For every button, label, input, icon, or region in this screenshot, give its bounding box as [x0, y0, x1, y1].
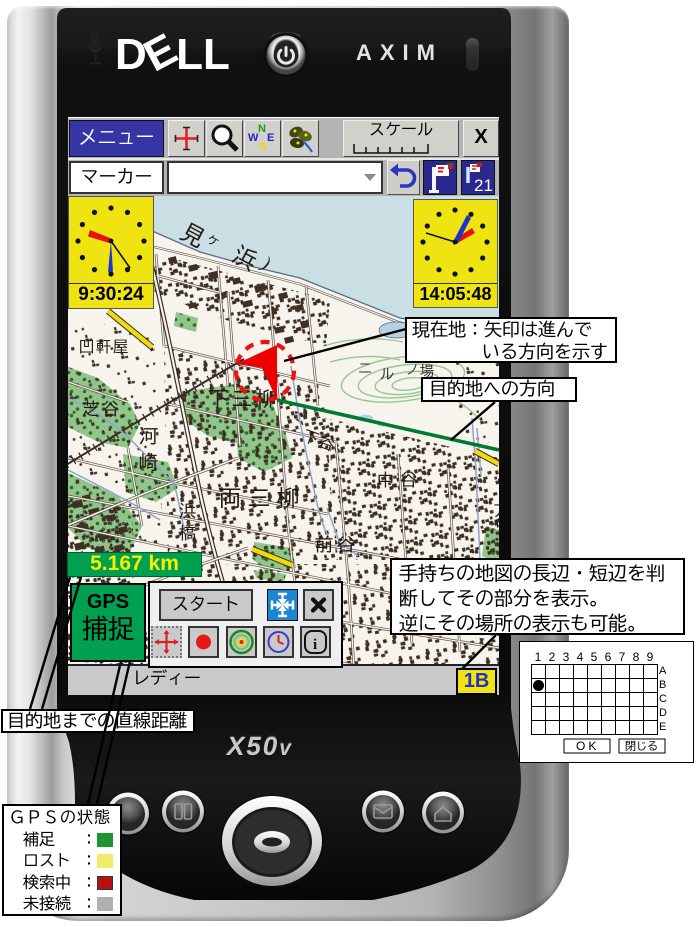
svg-text:1: 1 [535, 650, 542, 664]
svg-text:橋: 橋 [179, 524, 196, 542]
svg-text:浜: 浜 [179, 503, 196, 520]
svg-text:両三柳: 両三柳 [219, 487, 306, 509]
svg-text:8: 8 [633, 650, 640, 664]
svg-text:7: 7 [619, 650, 626, 664]
svg-text:i: i [313, 637, 317, 653]
svg-text:閉じる: 閉じる [625, 741, 658, 752]
svg-text:河: 河 [139, 427, 158, 446]
svg-text:D: D [659, 707, 667, 719]
svg-text:芝谷: 芝谷 [82, 401, 122, 418]
svg-text:凹軒屋: 凹軒屋 [79, 339, 130, 354]
svg-text:OK: OK [576, 739, 599, 753]
svg-text:B: B [659, 679, 666, 691]
svg-text:A: A [659, 665, 667, 677]
svg-text:中谷: 中谷 [377, 471, 423, 489]
svg-text:上: 上 [494, 491, 499, 507]
svg-text:5: 5 [591, 650, 598, 664]
svg-text:21: 21 [474, 176, 493, 194]
svg-text:ル: ル [380, 367, 394, 381]
svg-text:2: 2 [549, 650, 556, 664]
svg-text:6: 6 [605, 650, 612, 664]
svg-text:崎: 崎 [139, 453, 158, 472]
svg-text:9: 9 [647, 650, 654, 664]
svg-text:E: E [659, 721, 666, 733]
svg-text:ノ: ノ [406, 363, 419, 376]
svg-text:ニ: ニ [358, 361, 372, 375]
svg-text:C: C [659, 693, 667, 705]
svg-text:場: 場 [420, 364, 434, 378]
svg-text:谷: 谷 [494, 512, 499, 528]
svg-text:3: 3 [563, 650, 570, 664]
svg-text:4: 4 [577, 650, 584, 664]
svg-text:前谷: 前谷 [315, 536, 359, 554]
